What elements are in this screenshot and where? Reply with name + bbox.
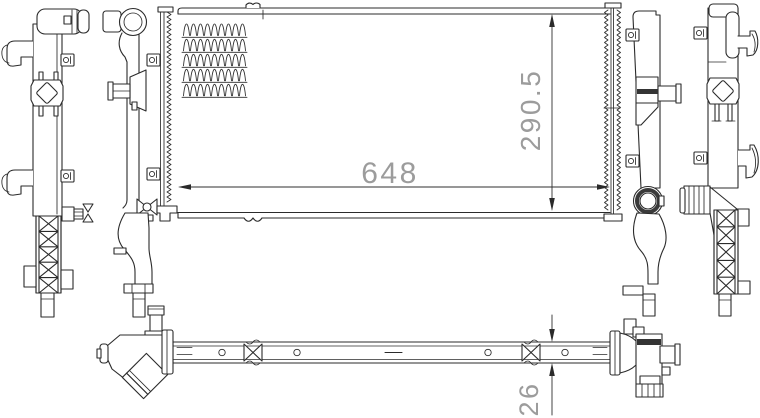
left-lower-hook-bracket	[2, 170, 33, 195]
right-lower-clip	[694, 152, 707, 164]
right-tank-side-view	[680, 4, 758, 316]
right-profile-upper-clip	[626, 29, 639, 41]
outlet-pipe-assembly	[610, 319, 680, 397]
right-profile-view	[623, 11, 681, 316]
fin-pattern	[182, 24, 247, 97]
right-s-bracket	[623, 213, 666, 316]
right-foot-pin	[719, 294, 731, 316]
left-s-bracket	[114, 213, 153, 317]
dimension-thickness: 26	[514, 315, 555, 417]
top-tank-band	[178, 3, 610, 19]
thickness-dimension-label: 26	[514, 381, 544, 416]
radiator-drawing: 648 290.5 26	[0, 0, 760, 418]
left-tank-body	[33, 24, 62, 216]
overflow-tube	[726, 12, 739, 58]
left-profile-view	[103, 9, 160, 318]
left-foot-pin	[41, 293, 54, 317]
left-upper-clip	[61, 54, 74, 66]
left-lower-clip	[61, 170, 74, 182]
right-side-plate	[604, 3, 622, 221]
lower-hose-port	[634, 187, 665, 216]
right-upper-hook-bracket	[738, 31, 758, 56]
filler-neck	[37, 9, 89, 34]
left-bolt-bracket	[62, 204, 93, 222]
profile-upper-clip	[147, 54, 160, 66]
bottom-tank-band	[178, 213, 610, 222]
profile-lower-clip	[147, 168, 160, 180]
dimension-width: 648	[178, 157, 610, 190]
filler-notch	[246, 3, 260, 8]
right-lower-hook-bracket	[738, 145, 758, 178]
width-dimension-label: 648	[361, 157, 419, 190]
height-dimension-label: 290.5	[515, 69, 546, 152]
inlet-pipe-assembly	[97, 306, 173, 399]
right-profile-lower-clip	[626, 155, 639, 167]
left-upper-hook-bracket	[2, 41, 33, 66]
left-side-plate	[157, 7, 177, 221]
drain-notch	[244, 218, 262, 221]
dimension-height: 290.5	[515, 14, 555, 211]
upper-hose-port	[103, 9, 147, 36]
right-upper-clip	[694, 27, 707, 39]
left-lattice-pillar	[24, 216, 73, 293]
bottom-plan-view	[97, 306, 680, 399]
technical-drawing-canvas: 648 290.5 26	[0, 0, 760, 418]
left-tank-side-view	[2, 9, 93, 317]
